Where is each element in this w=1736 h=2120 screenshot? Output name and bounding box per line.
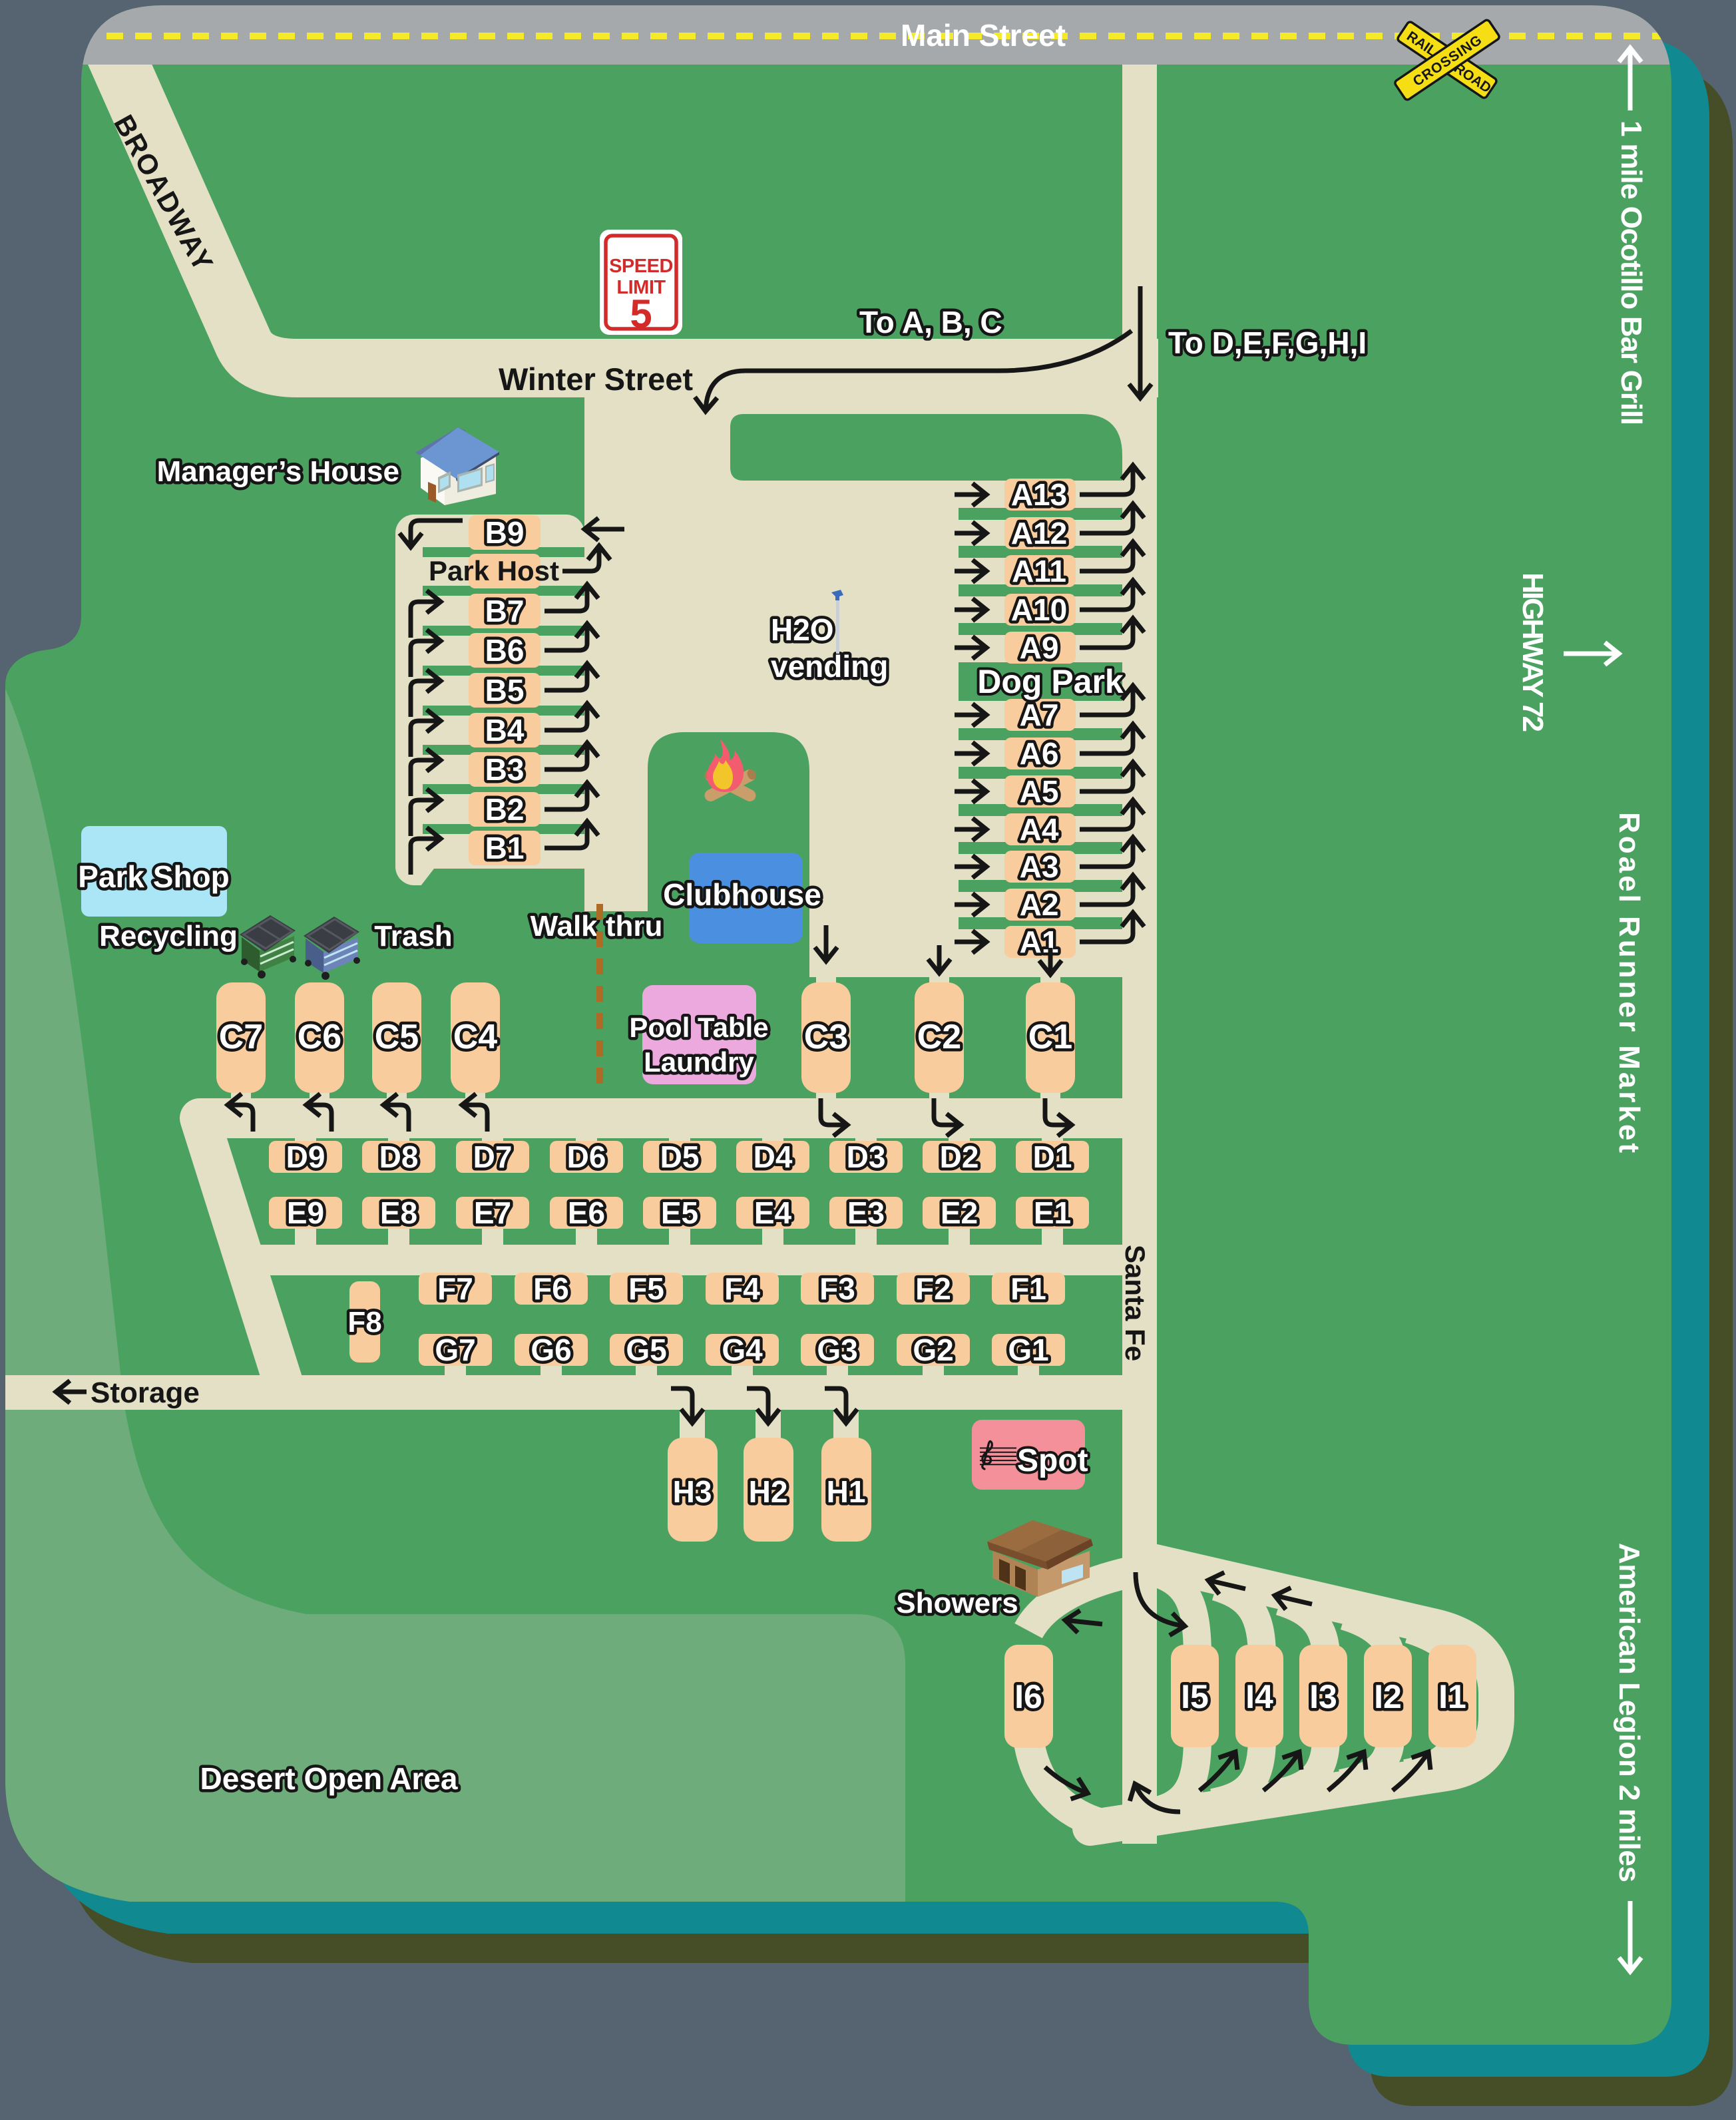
svg-text:D2: D2 [940, 1140, 979, 1174]
svg-text:D9: D9 [286, 1140, 325, 1174]
svg-text:SPEED: SPEED [609, 256, 673, 277]
svg-text:E9: E9 [287, 1195, 324, 1230]
svg-text:Spot: Spot [1017, 1443, 1088, 1478]
svg-text:Main Street: Main Street [901, 18, 1066, 53]
svg-text:Santa Fe: Santa Fe [1120, 1245, 1151, 1361]
svg-text:F7: F7 [437, 1271, 473, 1306]
svg-text:E6: E6 [568, 1195, 605, 1230]
svg-text:HIGHWAY 72: HIGHWAY 72 [1516, 572, 1549, 732]
svg-text:F8: F8 [347, 1306, 381, 1339]
svg-text:H3: H3 [673, 1474, 712, 1509]
svg-text:D7: D7 [473, 1140, 513, 1174]
svg-text:F1: F1 [1010, 1271, 1046, 1306]
svg-text:A2: A2 [1020, 887, 1059, 922]
svg-text:To D,E,F,G,H,I: To D,E,F,G,H,I [1168, 325, 1367, 360]
svg-text:B1: B1 [485, 831, 525, 865]
svg-text:Park Shop: Park Shop [78, 859, 230, 894]
svg-text:E8: E8 [380, 1195, 417, 1230]
svg-text:B6: B6 [485, 633, 525, 668]
svg-text:E1: E1 [1034, 1195, 1071, 1230]
svg-text:B3: B3 [485, 752, 525, 787]
svg-text:Park Host: Park Host [429, 555, 559, 586]
svg-text:Roael Runner Market: Roael Runner Market [1613, 812, 1645, 1153]
svg-text:American Legion 2 miles: American Legion 2 miles [1613, 1543, 1645, 1882]
svg-text:A12: A12 [1011, 516, 1067, 550]
svg-text:I6: I6 [1014, 1678, 1042, 1715]
svg-text:A11: A11 [1012, 554, 1066, 588]
svg-text:Winter Street: Winter Street [499, 361, 693, 397]
svg-text:F2: F2 [915, 1271, 951, 1306]
svg-text:1 mile Ocotillo Bar Grill: 1 mile Ocotillo Bar Grill [1615, 120, 1647, 425]
svg-text:E5: E5 [661, 1195, 698, 1230]
svg-text:A4: A4 [1020, 812, 1059, 847]
svg-text:A5: A5 [1020, 774, 1059, 809]
svg-text:C1: C1 [1028, 1018, 1072, 1056]
svg-text:F5: F5 [628, 1271, 664, 1306]
svg-text:G3: G3 [817, 1333, 857, 1367]
svg-text:I3: I3 [1309, 1678, 1337, 1715]
svg-text:G4: G4 [722, 1333, 763, 1367]
svg-text:I4: I4 [1245, 1678, 1273, 1715]
svg-text:Storage: Storage [91, 1377, 200, 1409]
svg-text:A13: A13 [1011, 477, 1067, 512]
svg-text:F4: F4 [724, 1271, 760, 1306]
svg-text:B7: B7 [485, 594, 525, 628]
svg-text:D1: D1 [1033, 1140, 1072, 1174]
svg-text:Pool Table: Pool Table [629, 1012, 768, 1043]
svg-text:C6: C6 [298, 1018, 341, 1056]
svg-text:A6: A6 [1020, 736, 1059, 771]
svg-text:C7: C7 [219, 1018, 263, 1056]
svg-text:5: 5 [630, 292, 652, 336]
svg-text:I5: I5 [1181, 1678, 1209, 1715]
svg-text:Manager’s House: Manager’s House [157, 455, 399, 488]
svg-text:B9: B9 [485, 515, 525, 550]
svg-text:E4: E4 [754, 1195, 792, 1230]
svg-text:H2: H2 [749, 1474, 788, 1509]
svg-text:E7: E7 [474, 1195, 511, 1230]
svg-text:E2: E2 [941, 1195, 978, 1230]
svg-text:I1: I1 [1438, 1678, 1466, 1715]
svg-text:Dog Park: Dog Park [977, 663, 1124, 700]
svg-text:G5: G5 [626, 1333, 666, 1367]
svg-text:B2: B2 [485, 792, 525, 827]
svg-text:F3: F3 [819, 1271, 855, 1306]
svg-text:Trash: Trash [374, 920, 452, 953]
svg-text:A10: A10 [1011, 592, 1067, 627]
svg-text:H2O: H2O [771, 612, 834, 647]
svg-text:I2: I2 [1374, 1678, 1402, 1715]
svg-text:G6: G6 [531, 1333, 571, 1367]
svg-text:A3: A3 [1020, 849, 1059, 884]
svg-text:H1: H1 [827, 1474, 866, 1509]
svg-text:G7: G7 [435, 1333, 475, 1367]
svg-text:C5: C5 [375, 1018, 419, 1056]
svg-text:Desert Open Area: Desert Open Area [200, 1761, 458, 1796]
svg-text:Laundry: Laundry [644, 1046, 754, 1078]
svg-text:A7: A7 [1020, 698, 1059, 732]
svg-text:D3: D3 [847, 1140, 886, 1174]
svg-text:C3: C3 [804, 1018, 848, 1056]
svg-text:D4: D4 [754, 1140, 793, 1174]
svg-text:A9: A9 [1020, 630, 1059, 665]
svg-text:D8: D8 [379, 1140, 419, 1174]
svg-text:B4: B4 [485, 713, 525, 747]
svg-text:C2: C2 [917, 1018, 961, 1056]
svg-text:G2: G2 [913, 1333, 953, 1367]
svg-text:B5: B5 [485, 673, 525, 708]
svg-text:E3: E3 [847, 1195, 885, 1230]
svg-text:To A, B, C: To A, B, C [859, 305, 1002, 339]
svg-text:D6: D6 [567, 1140, 606, 1174]
svg-text:A1: A1 [1020, 925, 1059, 959]
svg-text:Clubhouse: Clubhouse [663, 877, 821, 912]
svg-text:Showers: Showers [896, 1587, 1018, 1619]
svg-text:D5: D5 [660, 1140, 700, 1174]
svg-text:C4: C4 [453, 1018, 498, 1056]
svg-text:G1: G1 [1008, 1333, 1048, 1367]
svg-text:Recycling: Recycling [99, 920, 238, 953]
svg-text:vending: vending [771, 649, 888, 684]
svg-text:F6: F6 [533, 1271, 569, 1306]
